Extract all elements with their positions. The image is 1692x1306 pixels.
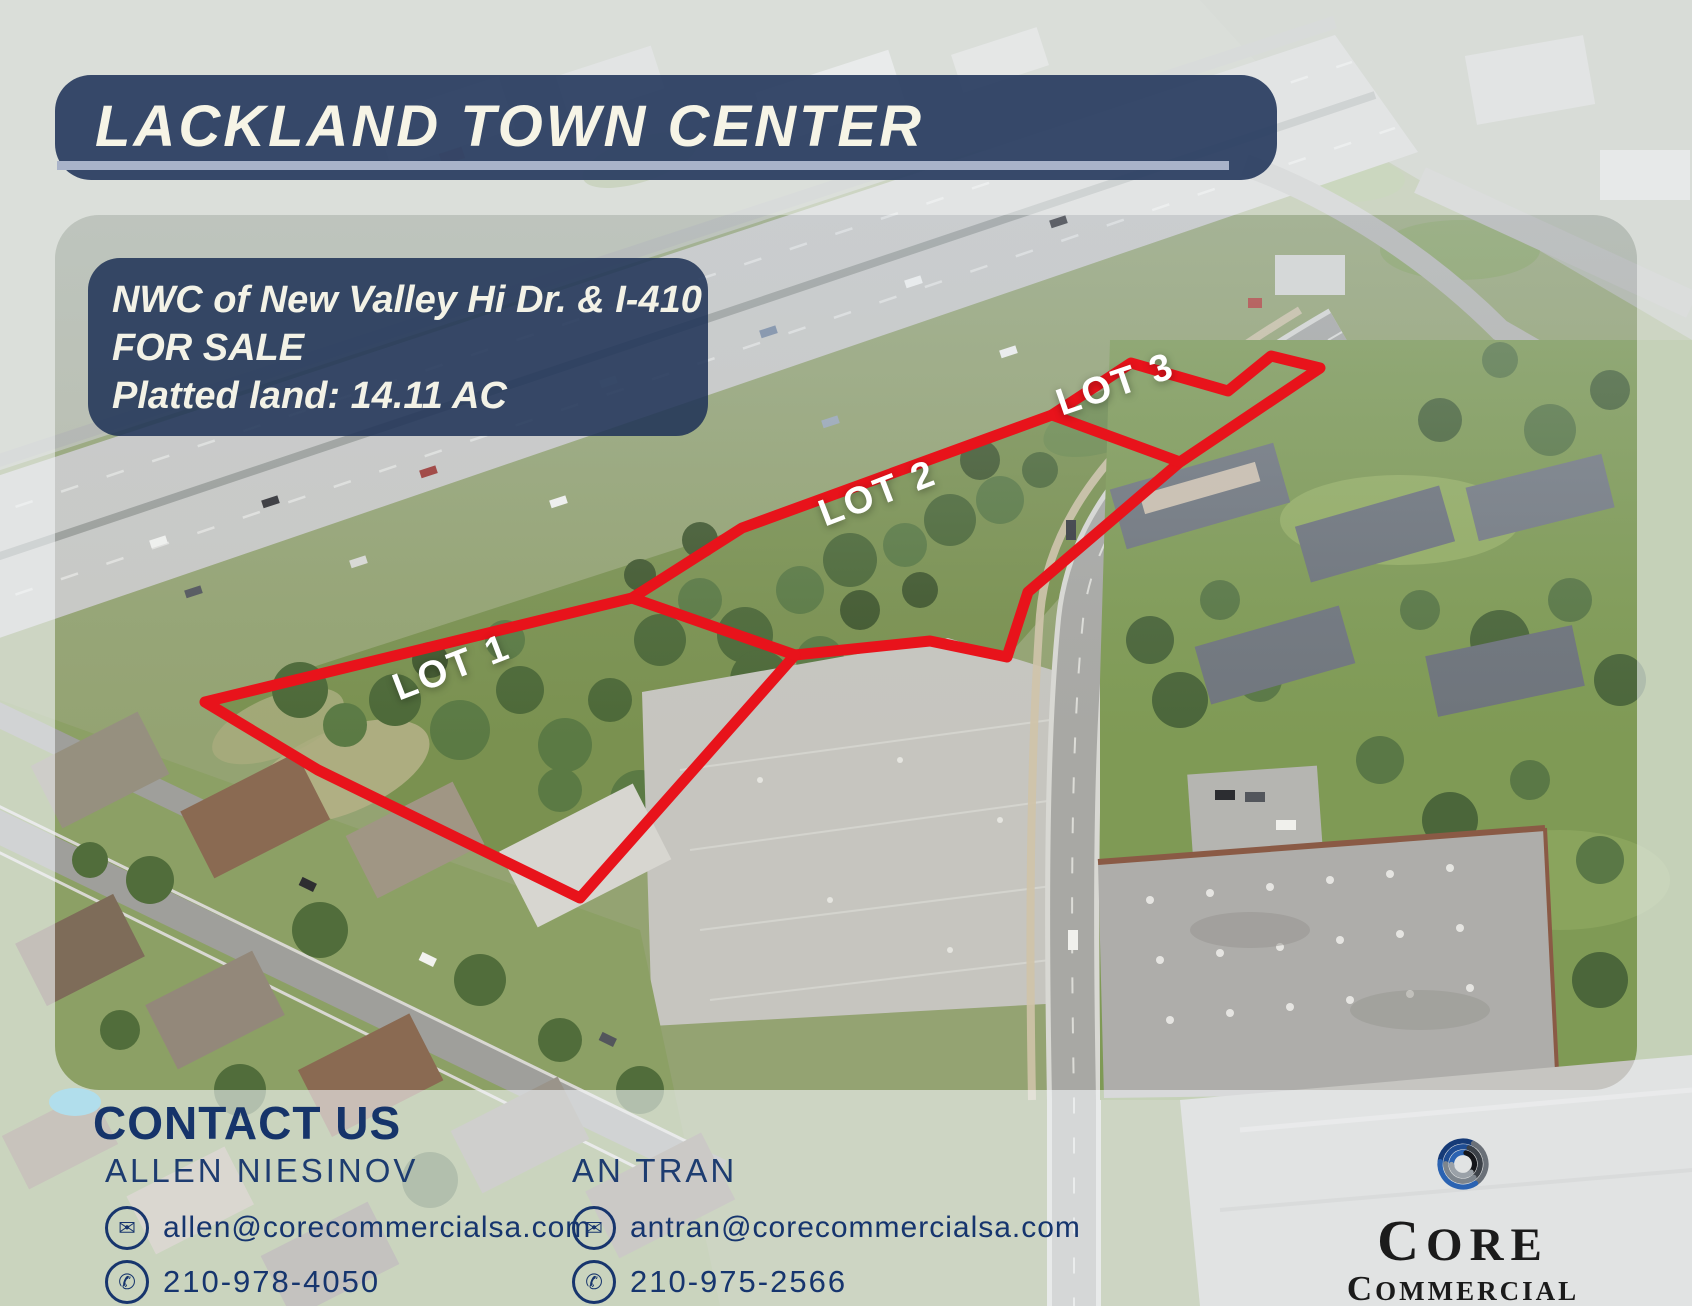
property-info-box: NWC of New Valley Hi Dr. & I-410 FOR SAL… bbox=[88, 258, 708, 436]
title-underline bbox=[57, 161, 1229, 170]
agent-phone: 210-975-2566 bbox=[630, 1264, 847, 1300]
agent-email: antran@corecommercialsa.com bbox=[630, 1211, 1081, 1245]
sale-status: FOR SALE bbox=[112, 324, 684, 372]
core-swirl-icon bbox=[1421, 1118, 1505, 1210]
contact-heading: CONTACT US bbox=[93, 1096, 401, 1150]
phone-icon: ✆ bbox=[105, 1260, 149, 1304]
title-banner: LACKLAND TOWN CENTER bbox=[55, 75, 1277, 180]
agent-name: AN TRAN bbox=[572, 1152, 1042, 1190]
company-logo: CORE COMMERCIAL bbox=[1318, 1118, 1608, 1306]
agent-card: AN TRAN ✉ antran@corecommercialsa.com ✆ … bbox=[572, 1152, 1042, 1306]
phone-row: ✆ 210-975-2566 bbox=[572, 1260, 1042, 1304]
property-location: NWC of New Valley Hi Dr. & I-410 bbox=[112, 276, 684, 324]
land-size: Platted land: 14.11 AC bbox=[112, 372, 684, 420]
email-row: ✉ antran@corecommercialsa.com bbox=[572, 1206, 1042, 1250]
logo-core-text: CORE bbox=[1318, 1212, 1608, 1270]
phone-row: ✆ 210-978-4050 bbox=[105, 1260, 575, 1304]
agent-card: ALLEN NIESINOV ✉ allen@corecommercialsa.… bbox=[105, 1152, 575, 1306]
page-title: LACKLAND TOWN CENTER bbox=[95, 93, 924, 160]
email-icon: ✉ bbox=[105, 1206, 149, 1250]
agent-phone: 210-978-4050 bbox=[163, 1264, 380, 1300]
agent-email: allen@corecommercialsa.com bbox=[163, 1211, 591, 1245]
phone-icon: ✆ bbox=[572, 1260, 616, 1304]
logo-commercial-text: COMMERCIAL bbox=[1318, 1270, 1608, 1306]
flyer: LOT 1 LOT 2 LOT 3 LACKLAND TOWN CENTER N… bbox=[0, 0, 1692, 1306]
email-row: ✉ allen@corecommercialsa.com bbox=[105, 1206, 575, 1250]
agent-name: ALLEN NIESINOV bbox=[105, 1152, 575, 1190]
parking-lot bbox=[642, 638, 1082, 1026]
email-icon: ✉ bbox=[572, 1206, 616, 1250]
